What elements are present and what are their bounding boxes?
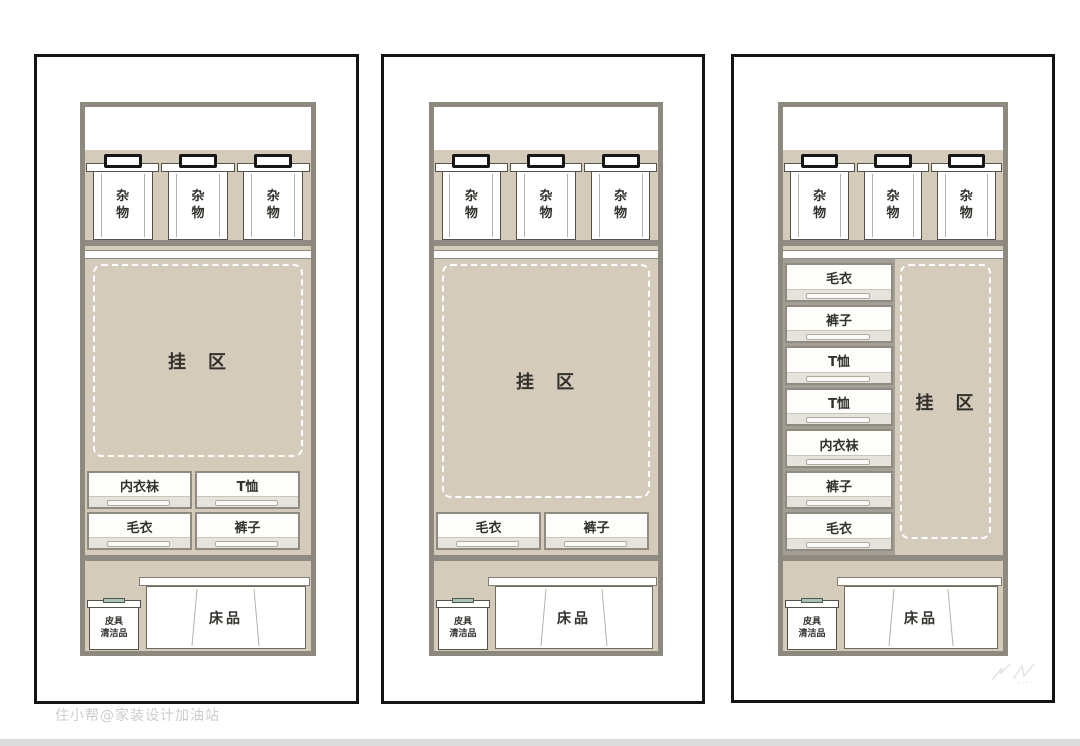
storage-box: 杂物 xyxy=(510,154,583,240)
box-lid xyxy=(785,600,839,608)
box-label: 杂物 xyxy=(190,189,206,223)
drawer-handle-groove xyxy=(806,376,870,382)
drawer-label: 毛衣 xyxy=(826,518,852,537)
box-body: 皮具 清洁品 xyxy=(787,608,837,650)
drawer-label: 毛衣 xyxy=(475,517,501,536)
box-shelf: 杂物 杂物 杂物 xyxy=(434,150,658,240)
drawer-section: 毛衣 裤子 xyxy=(434,510,658,555)
layout-panel-3: 杂物 杂物 杂物 毛衣 裤子 xyxy=(731,54,1055,703)
bedding-shelf-bar xyxy=(488,577,657,586)
drawer-handle-groove xyxy=(806,500,870,506)
bedding-fold-line xyxy=(254,589,260,646)
leather-care-box: 皮具 清洁品 xyxy=(787,600,837,650)
box-body: 杂物 xyxy=(442,172,502,240)
box-label: 杂物 xyxy=(463,189,479,223)
storage-box: 杂物 xyxy=(86,154,159,240)
box-handle-icon xyxy=(104,154,142,168)
bedding-label: 床品 xyxy=(209,608,243,628)
drawer-handle-groove xyxy=(806,293,870,299)
drawer-front-band xyxy=(787,372,891,383)
drawer-front-band xyxy=(787,496,891,507)
box-label: 杂物 xyxy=(812,189,828,223)
top-shelf xyxy=(85,107,311,150)
drawer-label: 内衣袜 xyxy=(819,435,858,454)
bedding-shelf-bar xyxy=(139,577,310,586)
drawer-front-band xyxy=(89,496,190,507)
drawer: 裤子 xyxy=(195,512,300,550)
drawer: 毛衣 xyxy=(436,512,541,550)
drawer-label: 内衣袜 xyxy=(120,476,159,495)
box-body: 杂物 xyxy=(168,172,228,240)
bottom-compartment: 床品 皮具 清洁品 xyxy=(783,561,1003,651)
drawer-front-band xyxy=(546,537,647,548)
bedding-fold-line xyxy=(540,589,546,646)
signature-scribble-icon xyxy=(988,660,1040,686)
box-label: 杂物 xyxy=(115,189,131,223)
drawer: 毛衣 xyxy=(87,512,192,550)
hanging-zone-label: 挂 区 xyxy=(516,368,576,394)
bedding-fold-line xyxy=(947,589,953,646)
top-shelf xyxy=(783,107,1003,150)
drawer: 毛衣 xyxy=(785,512,893,551)
drawer-front-band xyxy=(787,413,891,424)
drawer-handle-groove xyxy=(806,542,870,548)
box-body: 杂物 xyxy=(243,172,303,240)
wardrobe-3: 杂物 杂物 杂物 毛衣 裤子 xyxy=(778,102,1008,656)
drawer-handle-groove xyxy=(215,500,278,506)
hanging-rail xyxy=(783,250,1003,259)
drawer-label: 裤子 xyxy=(826,476,852,495)
box-body: 杂物 xyxy=(790,172,848,240)
drawer-front-band xyxy=(438,537,539,548)
drawer-label: T恤 xyxy=(237,476,259,495)
drawer-label: 毛衣 xyxy=(826,268,852,287)
storage-box: 杂物 xyxy=(784,154,855,240)
drawer-front-band xyxy=(197,537,298,548)
box-handle-icon xyxy=(602,154,640,168)
box-label: 杂物 xyxy=(885,189,901,223)
drawer: 裤子 xyxy=(544,512,649,550)
leather-care-box: 皮具 清洁品 xyxy=(89,600,139,650)
drawer: 裤子 xyxy=(785,305,893,344)
leather-box-label-line1: 皮具 xyxy=(803,617,821,628)
drawer: T恤 xyxy=(785,346,893,385)
hanging-zone: 挂 区 xyxy=(434,259,658,510)
box-body: 杂物 xyxy=(516,172,576,240)
hanging-zone-label: 挂 区 xyxy=(168,348,228,374)
bedding-fold-line xyxy=(601,589,607,646)
middle-section: 毛衣 裤子 T恤 T恤 内衣袜 xyxy=(783,259,1003,555)
box-body: 杂物 xyxy=(93,172,153,240)
box-handle-icon xyxy=(452,154,490,168)
box-body: 杂物 xyxy=(937,172,995,240)
storage-box: 杂物 xyxy=(857,154,928,240)
drawer-label: 毛衣 xyxy=(126,517,152,536)
hanging-zone-outline: 挂 区 xyxy=(93,264,303,457)
storage-box: 杂物 xyxy=(435,154,508,240)
box-label: 杂物 xyxy=(265,189,281,223)
bedding-fold-line xyxy=(192,589,198,646)
drawer-label: 裤子 xyxy=(826,310,852,329)
leather-box-label-line2: 清洁品 xyxy=(798,629,825,640)
drawer-section: 内衣袜 T恤 毛衣 裤子 xyxy=(85,469,311,555)
bedding-box: 床品 xyxy=(844,586,998,649)
drawer-label: T恤 xyxy=(828,393,850,412)
wardrobe-1: 杂物 杂物 杂物 挂 区 内衣袜 xyxy=(80,102,316,656)
box-shelf: 杂物 杂物 杂物 xyxy=(85,150,311,240)
drawer-label: T恤 xyxy=(828,351,850,370)
drawer-handle-groove xyxy=(806,459,870,465)
box-lid xyxy=(436,600,490,608)
leather-box-label-line2: 清洁品 xyxy=(100,629,127,640)
drawer: 内衣袜 xyxy=(87,471,192,509)
box-body: 皮具 清洁品 xyxy=(438,608,488,650)
bedding-label: 床品 xyxy=(904,608,938,628)
storage-box: 杂物 xyxy=(931,154,1002,240)
hanging-zone: 挂 区 xyxy=(895,259,1003,555)
storage-box: 杂物 xyxy=(584,154,657,240)
drawer-handle-groove xyxy=(564,541,627,547)
box-lid xyxy=(87,600,141,608)
hanging-rail xyxy=(434,250,658,259)
leather-box-label-line1: 皮具 xyxy=(105,617,123,628)
drawer-front-band xyxy=(89,537,190,548)
bedding-fold-line xyxy=(888,589,894,646)
box-clasp-icon xyxy=(452,598,474,603)
drawer-handle-groove xyxy=(215,541,278,547)
hanging-rail xyxy=(85,250,311,259)
drawer-label: 裤子 xyxy=(234,517,260,536)
drawer-handle-groove xyxy=(107,500,170,506)
box-body: 皮具 清洁品 xyxy=(89,608,139,650)
drawer-front-band xyxy=(787,455,891,466)
box-label: 杂物 xyxy=(613,189,629,223)
bottom-compartment: 床品 皮具 清洁品 xyxy=(434,561,658,651)
box-label: 杂物 xyxy=(538,189,554,223)
bedding-box: 床品 xyxy=(146,586,306,649)
drawer: T恤 xyxy=(785,388,893,427)
box-handle-icon xyxy=(801,154,838,168)
bedding-box: 床品 xyxy=(495,586,653,649)
drawer: 裤子 xyxy=(785,471,893,510)
drawer: T恤 xyxy=(195,471,300,509)
hanging-zone: 挂 区 xyxy=(85,259,311,469)
box-handle-icon xyxy=(874,154,911,168)
box-clasp-icon xyxy=(801,598,823,603)
bedding-shelf-bar xyxy=(837,577,1002,586)
drawer-front-band xyxy=(787,289,891,300)
drawer-front-band xyxy=(787,330,891,341)
drawer: 毛衣 xyxy=(785,263,893,302)
box-label: 杂物 xyxy=(958,189,974,223)
bottom-compartment: 床品 皮具 清洁品 xyxy=(85,561,311,651)
storage-box: 杂物 xyxy=(237,154,310,240)
box-handle-icon xyxy=(527,154,565,168)
watermark: 住小帮@家装设计加油站 xyxy=(55,705,220,725)
drawer-handle-groove xyxy=(456,541,519,547)
leather-box-label-line2: 清洁品 xyxy=(449,629,476,640)
drawer-column: 毛衣 裤子 T恤 T恤 内衣袜 xyxy=(783,259,895,555)
drawer-handle-groove xyxy=(806,417,870,423)
layout-panel-2: 杂物 杂物 杂物 挂 区 毛衣 xyxy=(381,54,705,704)
drawer-handle-groove xyxy=(806,334,870,340)
box-shelf: 杂物 杂物 杂物 xyxy=(783,150,1003,240)
hanging-zone-label: 挂 区 xyxy=(916,389,976,415)
hanging-zone-outline: 挂 区 xyxy=(442,264,650,498)
storage-box: 杂物 xyxy=(161,154,234,240)
drawer-label: 裤子 xyxy=(583,517,609,536)
box-handle-icon xyxy=(254,154,292,168)
box-clasp-icon xyxy=(103,598,125,603)
drawer-front-band xyxy=(787,538,891,549)
drawer-front-band xyxy=(197,496,298,507)
bottom-gray-strip xyxy=(0,739,1080,746)
drawer-handle-groove xyxy=(107,541,170,547)
leather-box-label-line1: 皮具 xyxy=(454,617,472,628)
box-handle-icon xyxy=(179,154,217,168)
layout-panel-1: 杂物 杂物 杂物 挂 区 内衣袜 xyxy=(34,54,359,704)
wardrobe-2: 杂物 杂物 杂物 挂 区 毛衣 xyxy=(429,102,663,656)
box-handle-icon xyxy=(948,154,985,168)
box-body: 杂物 xyxy=(864,172,922,240)
drawer: 内衣袜 xyxy=(785,429,893,468)
hanging-zone-outline: 挂 区 xyxy=(900,264,991,539)
box-body: 杂物 xyxy=(591,172,651,240)
bedding-label: 床品 xyxy=(557,608,591,628)
leather-care-box: 皮具 清洁品 xyxy=(438,600,488,650)
top-shelf xyxy=(434,107,658,150)
